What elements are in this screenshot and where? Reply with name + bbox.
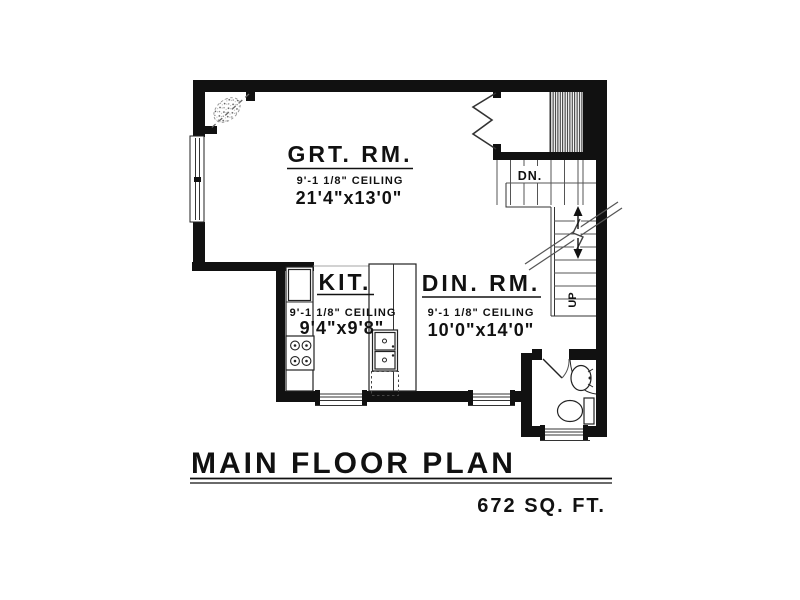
closet-door-jamb-top [493, 88, 501, 98]
fireplace-jamb-top [246, 92, 255, 101]
kitchen-name: KIT. [319, 269, 372, 295]
dining-room-ceiling: 9'-1 1/8" CEILING [428, 307, 535, 319]
title-block: MAIN FLOOR PLAN 672 SQ. FT. [190, 447, 612, 517]
hatched-area [550, 92, 583, 152]
bifold-doors [473, 93, 496, 149]
kitchen-size: 9'4"x9'8" [300, 318, 385, 338]
closet [473, 92, 583, 152]
floor-plan-drawing: DN. UP [0, 0, 800, 600]
closet-south-wall [493, 152, 583, 160]
bathroom-fixtures [543, 359, 596, 424]
bathroom-door [543, 359, 569, 378]
right-wall [596, 80, 607, 437]
stair-rail [506, 183, 551, 207]
bathroom-west-wall [521, 353, 532, 437]
refrigerator [289, 270, 311, 301]
toilet [558, 398, 595, 424]
great-room-label: GRT. RM. 9'-1 1/8" CEILING 21'4"x13'0" [287, 141, 413, 208]
plan-area: 672 SQ. FT. [477, 495, 606, 517]
bathroom-window [540, 425, 590, 441]
plan-title: MAIN FLOOR PLAN [191, 447, 516, 480]
great-room-name: GRT. RM. [288, 141, 413, 167]
dining-room-name: DIN. RM. [422, 270, 541, 296]
great-room-size: 21'4"x13'0" [296, 188, 403, 208]
top-wall [193, 80, 607, 92]
kitchen-west-wall [276, 262, 285, 402]
bathroom-north-wall-right [569, 349, 596, 360]
dining-room-label: DIN. RM. 9'-1 1/8" CEILING 10'0"x14'0" [422, 270, 541, 340]
corner-fireplace [209, 93, 249, 130]
bathroom-north-wall-left [532, 349, 542, 360]
left-wall-upper [193, 80, 205, 137]
bathroom-sink [571, 366, 593, 391]
fireplace-hearth [209, 93, 245, 128]
fireplace-jamb-left [205, 126, 217, 134]
stairs-down-label: DN. [518, 169, 543, 183]
dining-room-size: 10'0"x14'0" [428, 320, 535, 340]
dining-window [468, 390, 515, 406]
range-stove [286, 336, 314, 370]
great-room-window [190, 136, 204, 222]
floor-plan-page: DN. UP [0, 0, 800, 600]
great-room-ceiling: 9'-1 1/8" CEILING [297, 175, 404, 187]
stairs-up-label: UP [567, 292, 579, 307]
kitchen-window [315, 390, 367, 406]
